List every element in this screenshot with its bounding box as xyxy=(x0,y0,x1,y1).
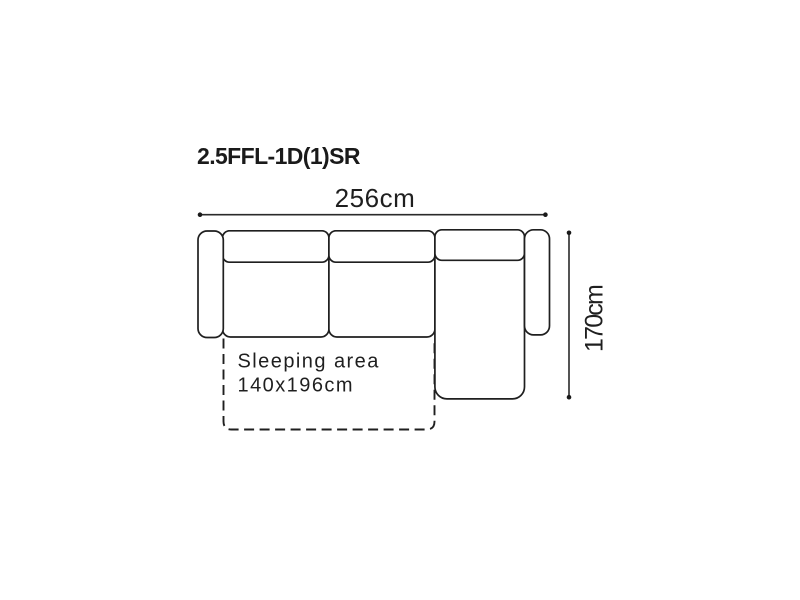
svg-text:Sleeping area: Sleeping area xyxy=(238,351,380,373)
svg-text:2.5FFL-1D(1)SR: 2.5FFL-1D(1)SR xyxy=(197,143,361,169)
svg-text:170cm: 170cm xyxy=(581,285,609,352)
svg-text:256cm: 256cm xyxy=(335,183,416,213)
svg-text:140x196cm: 140x196cm xyxy=(238,375,354,397)
